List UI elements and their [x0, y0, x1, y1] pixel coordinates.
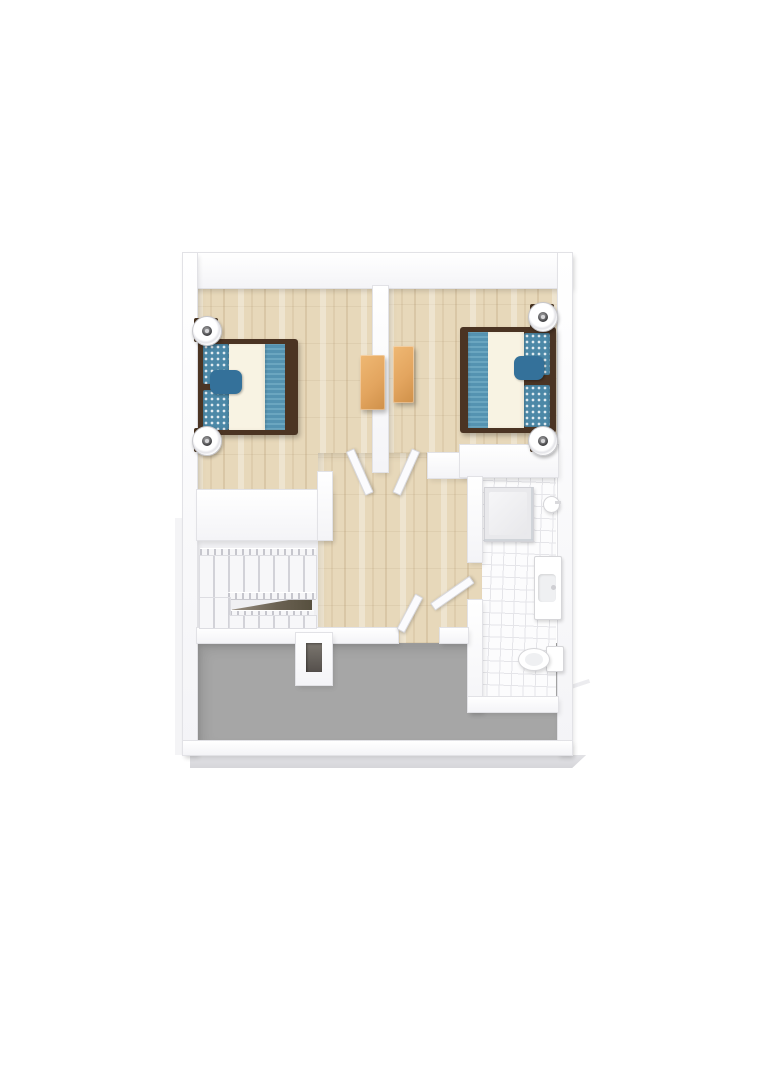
chimney-flue-void — [306, 643, 322, 672]
bed-left-lamp-top — [192, 316, 222, 346]
dresser-left — [360, 355, 385, 410]
stair-balustrade-mid — [228, 592, 316, 600]
bed-right-duvet — [488, 332, 524, 428]
slab-notch-right — [570, 679, 590, 689]
bed-left-runner — [265, 344, 285, 430]
wall-outer-right — [558, 253, 572, 755]
wall-hall-top-left-stub — [318, 472, 332, 540]
wall-bathroom-bottom — [468, 697, 558, 712]
slab-edge-bottom — [190, 755, 586, 768]
wall-bedroomleft-bottom — [197, 490, 332, 540]
shower-tray — [484, 487, 534, 542]
wall-outer-bottom — [183, 741, 572, 755]
floorplan-canvas — [0, 0, 764, 1080]
wall-hall-bottom-right — [440, 628, 468, 643]
toilet-bowl — [518, 648, 550, 671]
bed-left-lamp-bottom — [192, 426, 222, 456]
shower-glass-right — [531, 487, 533, 540]
bed-right-accent-pillow — [514, 356, 544, 380]
stair-lower-flight — [230, 616, 316, 628]
bed-left-accent-pillow — [210, 370, 242, 394]
bed-right-lamp-bottom — [528, 426, 558, 456]
wall-bathroom-left-lower — [468, 600, 482, 712]
stair-turn-treads — [200, 598, 230, 628]
bed-left-pillow-bottom — [203, 390, 229, 430]
wall-outer-top — [183, 253, 572, 288]
wall-bathroom-left-upper — [468, 477, 482, 562]
bed-right-runner — [468, 332, 488, 428]
vanity-faucet — [551, 585, 556, 590]
showerhead-arm — [555, 501, 561, 504]
bed-right-lamp-top — [528, 302, 558, 332]
bed-right-pillow-bottom — [524, 385, 550, 427]
slab-edge-left — [175, 518, 183, 755]
showerhead — [543, 496, 560, 513]
dresser-right — [393, 346, 414, 403]
shower-glass-bottom — [484, 539, 533, 541]
